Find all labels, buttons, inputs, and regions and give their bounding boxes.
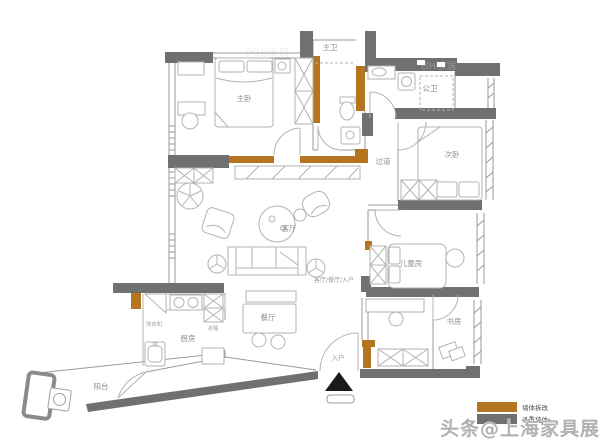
master-bathroom-fixtures (315, 63, 360, 150)
basin (372, 68, 386, 76)
cabinet (202, 348, 224, 364)
washing-machine-icon (48, 388, 72, 412)
balcony-group (23, 372, 146, 419)
room-label-corridor: 过道 (376, 156, 391, 166)
entry-label: 入户 (332, 353, 345, 362)
fridge-cabinet (204, 294, 223, 322)
study-desk-chair (439, 340, 465, 363)
sideboard (246, 291, 296, 302)
living-room-furniture (175, 166, 360, 277)
kitchen-sink (145, 342, 165, 366)
pillow (389, 266, 400, 283)
room-label-master-bedroom: 主卧 (237, 93, 252, 103)
kids-room-furniture (370, 210, 464, 288)
washing-machine-label: 洗衣机 (146, 320, 163, 328)
legend-label-modified-wall: 墙体拆改 (522, 403, 549, 412)
master-bed (215, 58, 273, 127)
armrest (298, 247, 306, 275)
room-label-balcony: 阳台 (94, 381, 109, 391)
bath-door-arc (370, 92, 396, 118)
room-label-study: 书房 (447, 316, 462, 326)
tv-wall-cabinets (175, 166, 360, 183)
shower-zone (420, 76, 453, 110)
door-arc (375, 210, 401, 236)
wardrobe (370, 246, 386, 284)
side-table (294, 209, 306, 221)
entrance-marker (325, 372, 354, 403)
cabinet (378, 349, 428, 366)
corner-counter (145, 294, 166, 313)
room-label-living-room: 客厅 (282, 223, 297, 233)
fan-table-icon (208, 255, 226, 273)
room-label-second-bedroom: 次卧 (445, 149, 460, 159)
fridge-label: 冰箱 (207, 324, 219, 332)
room-label-kitchen: 厨房 (181, 333, 196, 343)
wardrobe (401, 180, 437, 200)
wardrobe (295, 58, 313, 124)
faint-watermark: 创HI家居 (420, 60, 456, 72)
doormat (327, 395, 354, 403)
pillow (219, 61, 244, 72)
second-bedroom-furniture (398, 122, 482, 200)
pillow (459, 182, 479, 197)
armchair (201, 206, 236, 239)
sofa (228, 247, 306, 275)
study-furniture (366, 295, 465, 366)
lamp (278, 62, 286, 70)
stove-icon (170, 295, 202, 310)
fan-table-icon (307, 259, 325, 277)
pillow (389, 247, 400, 264)
side-table (446, 249, 464, 267)
room-label-kids-room: 儿童房 (400, 258, 423, 268)
floorplan-page: 主卧 主卫 公卫 过道 次卧 儿童房 书房 客厅 餐厅 厨房 阳台 客厅/餐厅/… (0, 0, 600, 446)
toilet-icon (340, 102, 354, 120)
stool (182, 113, 198, 129)
zone-label: 客厅/餐厅/入户 (314, 276, 354, 284)
dining-chair (252, 333, 266, 347)
room-label-dining-room: 餐厅 (261, 313, 276, 322)
site-watermark: 头条@上海家具展 (440, 417, 600, 440)
balcony-door-arc (118, 372, 146, 398)
armrest (228, 247, 236, 275)
entry-door-arc (320, 333, 358, 371)
master-bedroom-furniture (178, 58, 313, 155)
faint-watermark: 创HI家居 (245, 46, 290, 60)
plant-icon (177, 183, 203, 209)
dining-chair (271, 335, 285, 349)
legend-swatch-modified-wall (477, 402, 517, 412)
pillow (437, 182, 457, 197)
pillow (247, 61, 272, 72)
entrance-arrow-icon (325, 372, 353, 391)
dresser (178, 62, 204, 75)
desk (366, 299, 424, 312)
desk-chair (389, 312, 403, 326)
room-label-master-bathroom: 主卫 (323, 42, 338, 52)
washer-icon (398, 73, 415, 90)
room-label-public-bathroom: 公卫 (423, 84, 438, 93)
bath-door-arc (318, 126, 342, 150)
bedroom-door-arc (274, 128, 300, 155)
floorplan-canvas: 主卧 主卫 公卫 过道 次卧 儿童房 书房 客厅 餐厅 厨房 阳台 客厅/餐厅/… (0, 0, 600, 446)
